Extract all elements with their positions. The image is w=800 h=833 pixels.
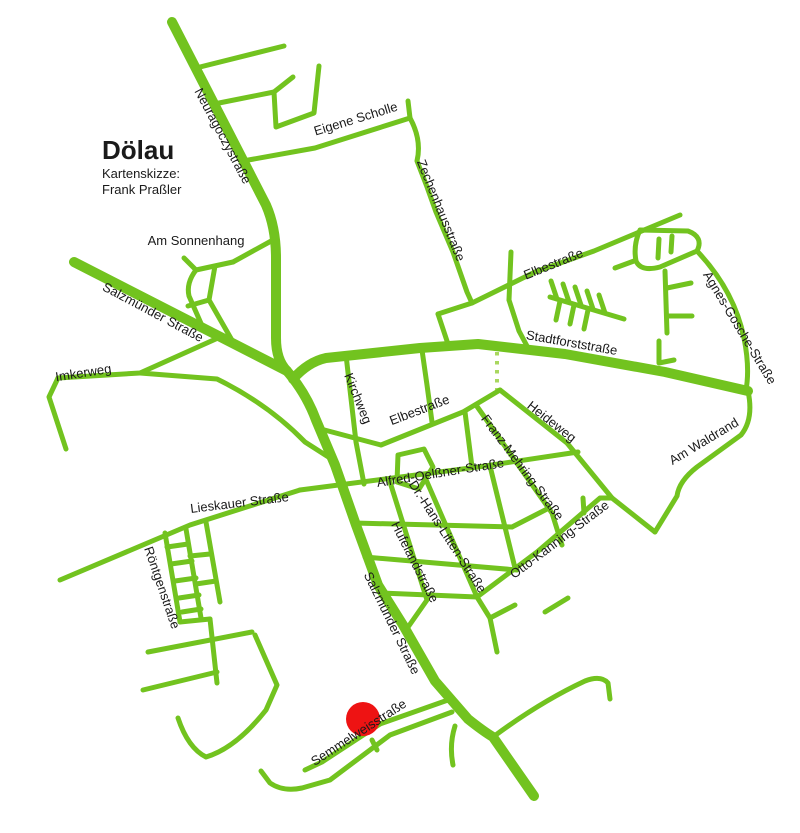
street-label-alfred-oelssner-strasse: Alfred-Oelßner-Straße: [376, 455, 505, 490]
road-segment: [509, 252, 511, 300]
road-segment: [206, 522, 220, 602]
road-segment: [615, 261, 634, 268]
road-segment: [171, 561, 192, 564]
road-segment: [490, 605, 515, 618]
road-segment: [175, 578, 196, 581]
road-segment: [665, 271, 667, 333]
street-label-imkerweg: Imkerweg: [54, 361, 112, 385]
road-segment: [490, 466, 515, 568]
road-segment: [509, 300, 527, 346]
road-segment: [178, 635, 277, 757]
road-segment: [179, 595, 199, 598]
road-segment: [556, 301, 560, 320]
road-segment: [196, 46, 284, 68]
street-label-agnes-gosche-strasse: Agnes-Gosche-Straße: [700, 268, 779, 387]
street-label-roentgenstrasse: Röntgenstraße: [141, 544, 183, 630]
road-segment: [493, 678, 610, 737]
street-label-kirchweg: Kirchweg: [341, 371, 375, 426]
road-segment: [635, 230, 699, 269]
road-segment: [190, 554, 210, 556]
credit-line-2: Frank Praßler: [102, 182, 182, 197]
road-segment: [365, 557, 517, 570]
street-label-elbestrasse-ne: Elbestraße: [521, 245, 585, 282]
street-label-am-sonnenhang: Am Sonnenhang: [148, 233, 245, 248]
road-segment: [196, 581, 216, 584]
road-segment: [49, 378, 66, 449]
road-segment: [570, 305, 574, 324]
road-segment: [671, 236, 672, 252]
road-segment: [274, 66, 319, 127]
page-title: Dölau: [102, 135, 174, 165]
road-segment: [451, 726, 455, 765]
street-label-salzmuender-strasse-central: Salzmünder Straße: [361, 569, 424, 676]
credit-line-1: Kartenskizze:: [102, 166, 180, 181]
road-segment: [184, 258, 196, 270]
road-segment: [143, 672, 217, 690]
road-segment: [167, 544, 188, 547]
road-segment: [438, 314, 448, 344]
road-segment: [408, 101, 410, 118]
road-segment: [658, 239, 659, 258]
street-label-lieskauer-strasse: Lieskauer Straße: [189, 489, 289, 516]
map-canvas: Dölau Kartenskizze: Frank Praßler Neurag…: [0, 0, 800, 833]
road-segment: [659, 341, 674, 363]
road-segment: [180, 619, 210, 622]
road-segment: [584, 310, 588, 329]
road-segment: [512, 508, 549, 527]
street-map: Dölau Kartenskizze: Frank Praßler Neurag…: [0, 0, 800, 833]
road-segment: [545, 598, 568, 612]
street-label-heideweg: Heideweg: [524, 398, 579, 445]
road-segment: [667, 283, 691, 288]
road-segment: [477, 597, 497, 652]
road-segment: [465, 412, 472, 467]
road-segment: [182, 609, 201, 612]
road-segment: [148, 632, 252, 652]
road-segment: [214, 77, 293, 104]
street-label-zechenhausstrasse: Zechenhausstraße: [414, 157, 469, 263]
